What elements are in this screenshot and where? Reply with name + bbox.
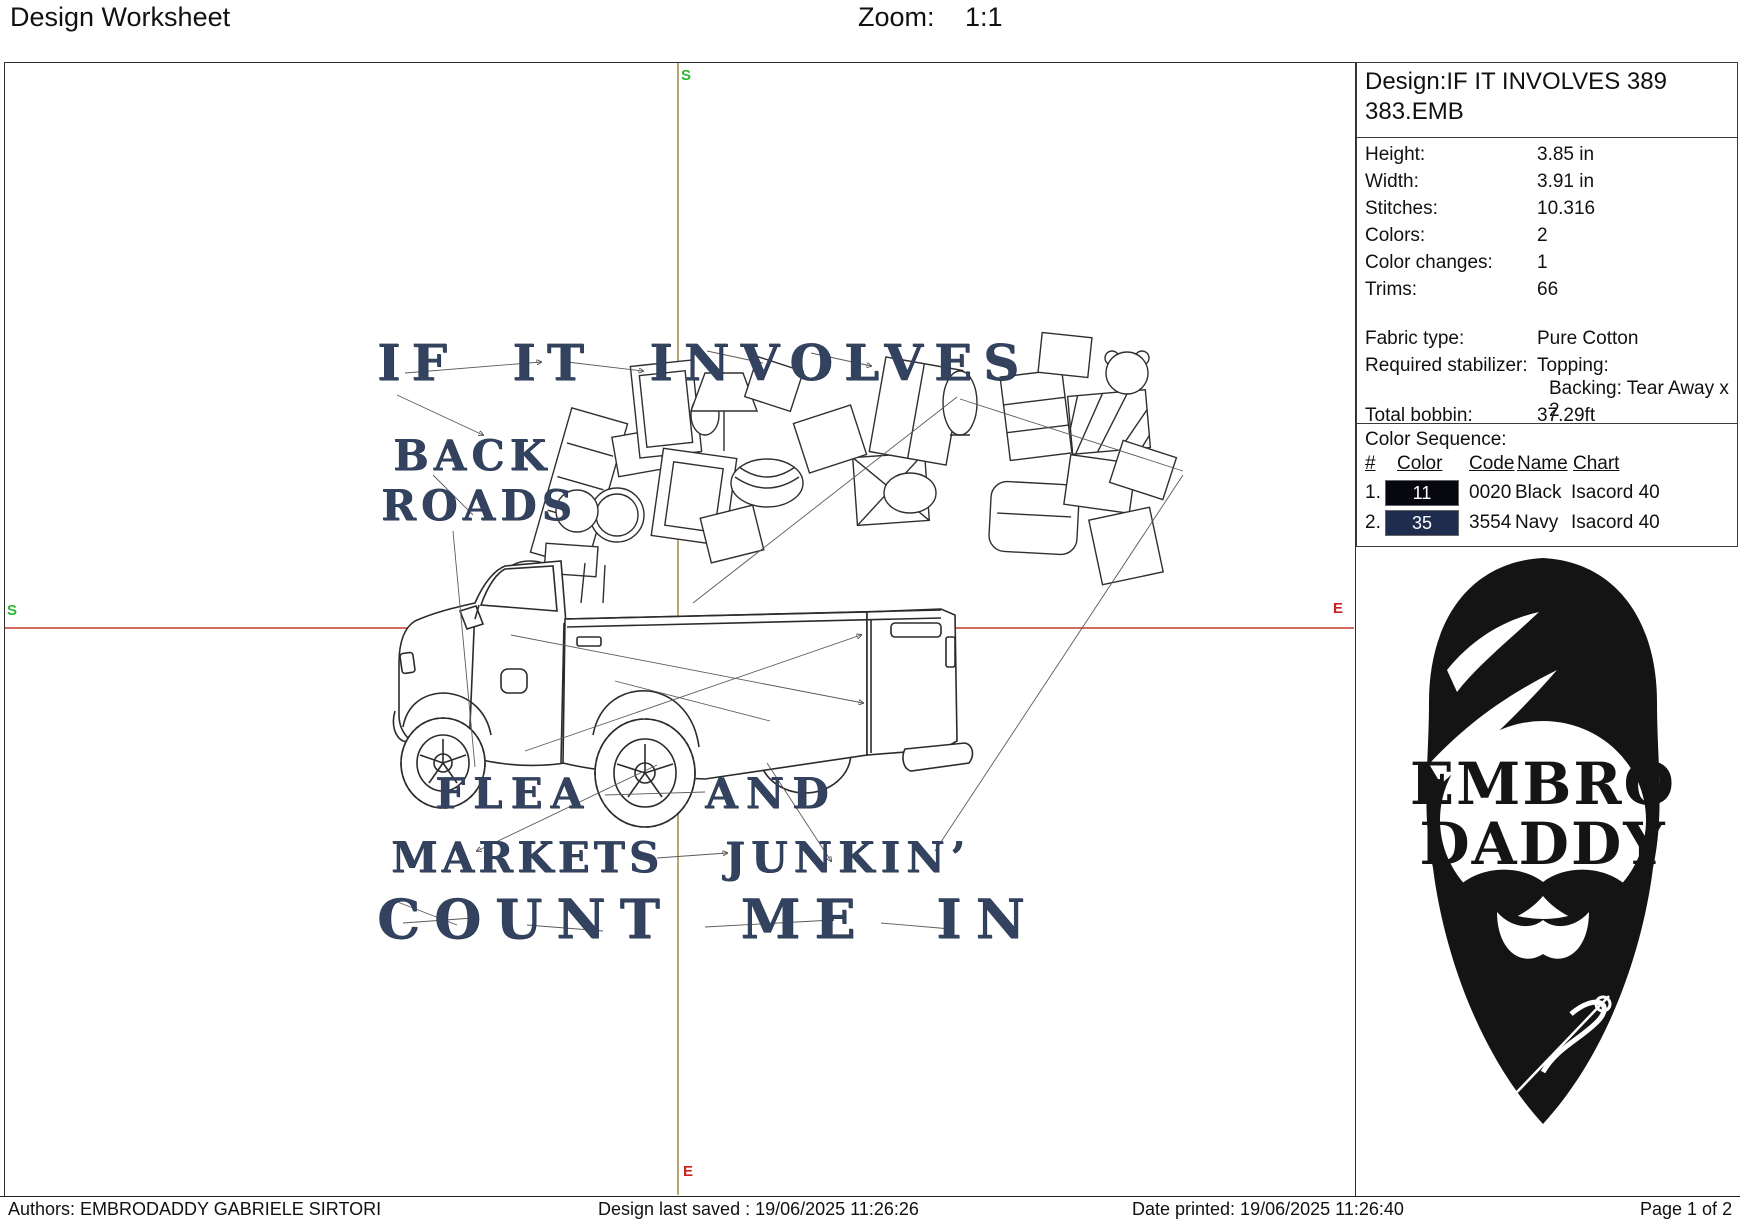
stat-row-trims: Trims: 66 xyxy=(1357,277,1737,304)
logo-line2: DADDY xyxy=(1419,810,1666,878)
stat-label: Stitches: xyxy=(1365,198,1438,220)
color-sequence-row: 2. 35 3554 Navy Isacord 40 xyxy=(1357,508,1737,538)
color-swatch: 11 xyxy=(1385,480,1459,506)
stat-row-stitches: Stitches: 10.316 xyxy=(1357,196,1737,223)
stabilizer-value: Topping: xyxy=(1537,355,1609,377)
embrodaddy-logo: EMBRO DADDY xyxy=(1385,552,1701,1160)
col-code: Code xyxy=(1469,453,1514,475)
fabric-value: Pure Cotton xyxy=(1537,328,1638,350)
stitch-text-flea: FLEA xyxy=(435,769,591,818)
stat-value: 1 xyxy=(1537,252,1548,274)
design-worksheet-page: Design Worksheet Zoom: 1:1 xyxy=(0,0,1740,1219)
thread-code: 0020 xyxy=(1469,482,1511,504)
stat-value: 2 xyxy=(1537,225,1548,247)
stat-row-color-changes: Color changes: 1 xyxy=(1357,250,1737,277)
zoom-value: 1:1 xyxy=(965,2,1003,33)
stat-value: 3.91 in xyxy=(1537,171,1594,193)
col-num: # xyxy=(1365,453,1376,475)
stat-row-width: Width: 3.91 in xyxy=(1357,169,1737,196)
design-stats-box: Height: 3.85 in Width: 3.91 in Stitches:… xyxy=(1356,137,1738,424)
color-swatch: 35 xyxy=(1385,510,1459,536)
footer-printed: Date printed: 19/06/2025 11:26:40 xyxy=(1132,1199,1404,1219)
stat-value: 10.316 xyxy=(1537,198,1595,220)
col-name: Name xyxy=(1517,453,1568,475)
footer-authors: Authors: EMBRODADDY GABRIELE SIRTORI xyxy=(8,1199,381,1219)
stitch-text-junkin: JUNKIN’ xyxy=(725,833,971,882)
stat-label: Width: xyxy=(1365,171,1419,193)
fabric-label: Fabric type: xyxy=(1365,328,1464,350)
stat-label: Height: xyxy=(1365,144,1425,166)
col-color: Color xyxy=(1397,453,1442,475)
thread-name: Navy xyxy=(1515,512,1558,534)
page-title: Design Worksheet xyxy=(10,2,230,33)
stat-row-height: Height: 3.85 in xyxy=(1357,142,1737,169)
stabilizer-label: Required stabilizer: xyxy=(1365,355,1528,377)
row-number: 1. xyxy=(1365,482,1381,504)
footer-page: Page 1 of 2 xyxy=(1640,1199,1732,1219)
footer-last-saved: Design last saved : 19/06/2025 11:26:26 xyxy=(598,1199,919,1219)
end-marker-bottom: E xyxy=(683,1163,693,1180)
rear-wheel xyxy=(595,719,695,827)
logo-line1: EMBRO xyxy=(1410,750,1676,818)
stat-label: Colors: xyxy=(1365,225,1425,247)
color-sequence-title: Color Sequence: xyxy=(1357,426,1737,453)
end-marker-right: E xyxy=(1333,600,1343,617)
stitch-text-and: AND xyxy=(705,769,836,818)
col-chart: Chart xyxy=(1573,453,1619,475)
stitch-text-roads: ROADS xyxy=(381,481,577,530)
design-name-box: Design:IF IT INVOLVES 389 383.EMB xyxy=(1356,62,1738,138)
fabric-type-row: Fabric type: Pure Cotton xyxy=(1357,326,1737,353)
stitch-text-back: BACK xyxy=(393,431,551,480)
zoom-label: Zoom: xyxy=(858,2,935,33)
row-number: 2. xyxy=(1365,512,1381,534)
color-sequence-box: Color Sequence: # Color Code Name Chart … xyxy=(1356,423,1738,547)
footer: Authors: EMBRODADDY GABRIELE SIRTORI Des… xyxy=(0,1196,1740,1219)
stat-row-colors: Colors: 2 xyxy=(1357,223,1737,250)
start-marker-top: S xyxy=(681,67,691,84)
start-marker-left: S xyxy=(7,602,17,619)
stitch-text-line1: IF IT INVOLVES xyxy=(377,333,969,392)
stat-label: Trims: xyxy=(1365,279,1417,301)
stat-label: Color changes: xyxy=(1365,252,1493,274)
stat-value: 66 xyxy=(1537,279,1558,301)
thread-code: 3554 xyxy=(1469,512,1511,534)
embroidery-artwork xyxy=(5,63,1354,1195)
thread-chart: Isacord 40 xyxy=(1571,512,1660,534)
thread-name: Black xyxy=(1515,482,1561,504)
design-canvas: S E S E IF IT INVOLVES BACK ROADS FLEA A… xyxy=(4,62,1356,1197)
color-sequence-row: 1. 11 0020 Black Isacord 40 xyxy=(1357,478,1737,508)
stitch-text-markets: MARKETS xyxy=(391,833,663,882)
thread-chart: Isacord 40 xyxy=(1571,482,1660,504)
stabilizer-row: Required stabilizer: Topping: Backing: T… xyxy=(1357,353,1737,403)
stitch-text-line5: COUNT ME IN xyxy=(377,887,969,951)
stat-value: 3.85 in xyxy=(1537,144,1594,166)
color-sequence-header: # Color Code Name Chart xyxy=(1357,453,1737,478)
